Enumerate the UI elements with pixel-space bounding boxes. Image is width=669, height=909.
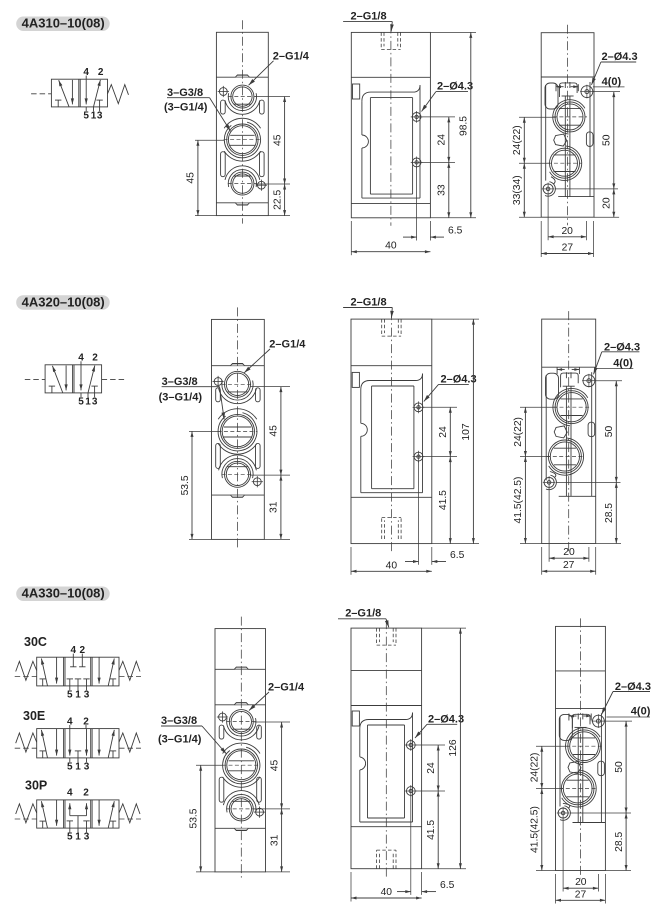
svg-text:20: 20 xyxy=(561,226,573,237)
svg-text:40: 40 xyxy=(386,560,398,571)
svg-text:2–G1/4: 2–G1/4 xyxy=(273,51,310,63)
svg-text:45: 45 xyxy=(186,172,197,184)
svg-text:33(34): 33(34) xyxy=(512,175,523,205)
svg-text:5: 5 xyxy=(67,689,73,700)
svg-text:126: 126 xyxy=(448,739,459,756)
svg-text:30C: 30C xyxy=(24,635,47,649)
svg-text:6.5: 6.5 xyxy=(448,226,463,237)
svg-text:41.5(42.5): 41.5(42.5) xyxy=(513,477,524,524)
svg-text:1: 1 xyxy=(91,110,97,121)
svg-text:1: 1 xyxy=(75,761,81,772)
svg-text:3–G3/8: 3–G3/8 xyxy=(167,87,203,99)
svg-text:50: 50 xyxy=(604,426,615,438)
svg-text:20: 20 xyxy=(563,547,575,558)
svg-text:3: 3 xyxy=(92,396,98,407)
svg-text:3: 3 xyxy=(97,110,103,121)
svg-text:1: 1 xyxy=(75,832,81,843)
svg-text:2: 2 xyxy=(98,67,104,78)
svg-text:4A330–10(08): 4A330–10(08) xyxy=(22,586,105,601)
svg-text:1: 1 xyxy=(75,689,81,700)
svg-text:5: 5 xyxy=(78,396,84,407)
svg-text:20: 20 xyxy=(602,197,613,209)
svg-text:28.5: 28.5 xyxy=(604,503,615,523)
svg-text:50: 50 xyxy=(614,761,625,773)
svg-text:2–G1/8: 2–G1/8 xyxy=(345,608,381,620)
svg-text:(3–G1/4): (3–G1/4) xyxy=(159,392,203,404)
svg-text:6.5: 6.5 xyxy=(450,550,465,561)
svg-text:2: 2 xyxy=(92,353,98,364)
svg-text:2–G1/4: 2–G1/4 xyxy=(268,682,305,694)
svg-text:27: 27 xyxy=(562,243,574,254)
svg-text:24(22): 24(22) xyxy=(512,125,523,155)
svg-text:24: 24 xyxy=(438,426,449,438)
svg-text:27: 27 xyxy=(563,560,575,571)
svg-text:5: 5 xyxy=(67,832,73,843)
svg-text:28.5: 28.5 xyxy=(614,832,625,852)
svg-text:27: 27 xyxy=(575,889,587,900)
svg-text:2–G1/8: 2–G1/8 xyxy=(351,11,387,23)
svg-text:30P: 30P xyxy=(25,779,47,793)
svg-text:2–Ø4.3: 2–Ø4.3 xyxy=(441,374,477,386)
svg-text:22.5: 22.5 xyxy=(272,190,283,210)
svg-text:50: 50 xyxy=(602,134,613,146)
svg-text:3: 3 xyxy=(84,761,90,772)
svg-text:4: 4 xyxy=(67,788,73,799)
svg-text:3: 3 xyxy=(84,689,90,700)
svg-text:98.5: 98.5 xyxy=(459,116,470,136)
svg-text:2–Ø4.3: 2–Ø4.3 xyxy=(602,51,638,63)
svg-text:(3–G1/4): (3–G1/4) xyxy=(158,734,202,746)
svg-text:2–Ø4.3: 2–Ø4.3 xyxy=(437,81,473,93)
svg-text:31: 31 xyxy=(269,834,280,846)
svg-text:(3–G1/4): (3–G1/4) xyxy=(164,102,208,114)
svg-text:41.5: 41.5 xyxy=(426,820,437,840)
svg-text:4(0): 4(0) xyxy=(602,76,622,88)
svg-text:2: 2 xyxy=(83,788,89,799)
svg-text:107: 107 xyxy=(461,423,472,440)
svg-text:41.5(42.5): 41.5(42.5) xyxy=(530,806,541,853)
svg-text:3–G3/8: 3–G3/8 xyxy=(161,715,197,727)
svg-text:20: 20 xyxy=(575,877,587,888)
svg-text:2–G1/8: 2–G1/8 xyxy=(351,297,387,309)
svg-text:31: 31 xyxy=(269,501,280,513)
svg-text:4A310–10(08): 4A310–10(08) xyxy=(22,16,105,31)
svg-text:53.5: 53.5 xyxy=(189,808,200,828)
svg-text:45: 45 xyxy=(269,760,280,772)
svg-text:24: 24 xyxy=(426,762,437,774)
svg-text:24(22): 24(22) xyxy=(530,753,541,783)
svg-text:2–G1/4: 2–G1/4 xyxy=(269,339,306,351)
svg-text:5: 5 xyxy=(83,110,89,121)
svg-text:33: 33 xyxy=(437,184,448,196)
svg-text:5: 5 xyxy=(67,761,73,772)
svg-text:3: 3 xyxy=(84,832,90,843)
svg-text:45: 45 xyxy=(272,134,283,146)
svg-text:3–G3/8: 3–G3/8 xyxy=(162,376,198,388)
svg-text:53.5: 53.5 xyxy=(180,475,191,495)
svg-text:4A320–10(08): 4A320–10(08) xyxy=(22,294,105,309)
svg-text:4(0): 4(0) xyxy=(613,358,633,370)
svg-text:1: 1 xyxy=(85,396,91,407)
svg-text:40: 40 xyxy=(381,887,393,898)
svg-text:24(22): 24(22) xyxy=(513,417,524,447)
svg-text:2–Ø4.3: 2–Ø4.3 xyxy=(428,714,464,726)
svg-text:45: 45 xyxy=(269,425,280,437)
svg-text:40: 40 xyxy=(385,241,397,252)
svg-text:41.5: 41.5 xyxy=(438,490,449,510)
svg-text:4(0): 4(0) xyxy=(631,706,651,718)
svg-text:24: 24 xyxy=(437,134,448,146)
svg-text:30E: 30E xyxy=(23,709,45,723)
svg-text:6.5: 6.5 xyxy=(440,880,455,891)
